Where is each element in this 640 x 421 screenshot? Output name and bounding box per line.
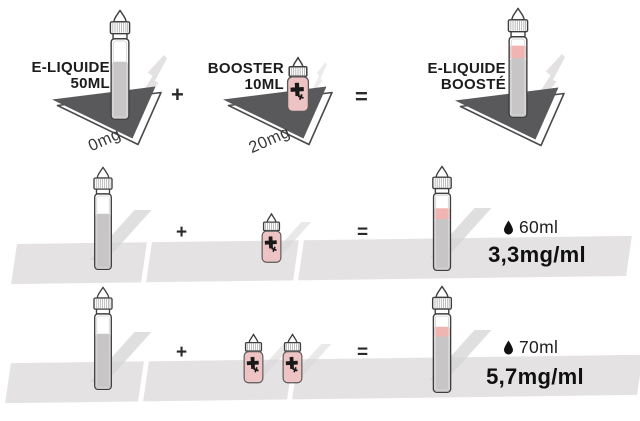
band-divider bbox=[293, 238, 304, 282]
bottle-cap bbox=[94, 298, 112, 309]
booster-bottle bbox=[283, 56, 313, 114]
eliquide-bottle-base bbox=[85, 286, 121, 392]
row2-concentration: 3,3mg/ml bbox=[452, 242, 622, 268]
plus-operator: + bbox=[176, 343, 187, 362]
eliquid-fill bbox=[510, 58, 526, 117]
booster-label-line1: BOOSTER bbox=[188, 61, 284, 77]
booster-layer-fill bbox=[510, 46, 526, 59]
droplet-icon bbox=[503, 340, 514, 355]
bottle-cap bbox=[508, 20, 527, 32]
equals-operator: = bbox=[357, 223, 368, 242]
eliquide-bottle-base bbox=[85, 166, 121, 272]
booster-pair bbox=[240, 331, 308, 387]
result-label-line1: E-LIQUIDE bbox=[410, 61, 506, 77]
plus-operator: + bbox=[176, 223, 187, 242]
eliquid-fill bbox=[435, 219, 450, 270]
bottle-collar bbox=[96, 189, 109, 194]
booster-bottle bbox=[279, 331, 306, 387]
bottle-tip bbox=[288, 334, 297, 342]
bottle-collar bbox=[96, 309, 109, 314]
cap-ridges bbox=[291, 68, 304, 76]
eliquid-mixing-infographic: E-LIQUIDE 50ML 0mg + BOOSTER 10ML 20mg =… bbox=[0, 0, 640, 421]
base-label-line1: E-LIQUIDE bbox=[14, 60, 110, 76]
booster-bottle bbox=[240, 331, 267, 387]
row2-volume-value: 60ml bbox=[519, 217, 558, 238]
bottle-tip bbox=[267, 214, 276, 222]
booster-label-line2: 10ML bbox=[188, 77, 284, 93]
eliquid-fill bbox=[96, 334, 111, 389]
base-label: E-LIQUIDE 50ML bbox=[14, 60, 110, 91]
bottle-cap bbox=[94, 178, 112, 189]
equals-operator: = bbox=[355, 86, 368, 108]
equals-operator: = bbox=[357, 343, 368, 362]
cap-ridges bbox=[287, 344, 299, 351]
droplet-icon bbox=[503, 220, 514, 235]
row2-volume: 60ml bbox=[503, 217, 558, 238]
bottle-tip bbox=[293, 58, 303, 67]
eliquid-fill bbox=[434, 337, 449, 392]
row3-volume: 70ml bbox=[503, 337, 558, 358]
booster-label: BOOSTER 10ML bbox=[188, 61, 284, 92]
booster-bottle bbox=[258, 211, 285, 266]
band-divider bbox=[141, 240, 152, 284]
bottle-collar bbox=[113, 34, 127, 39]
cap-ridges bbox=[248, 344, 260, 351]
result-label: E-LIQUIDE BOOSTÉ bbox=[410, 61, 506, 92]
booster-layer-fill bbox=[435, 208, 450, 220]
bottle-collar bbox=[435, 189, 448, 194]
bottle-cap bbox=[433, 177, 451, 188]
bottle-tip bbox=[512, 8, 524, 19]
row3-concentration: 5,7mg/ml bbox=[450, 364, 620, 390]
bottle-tip bbox=[436, 286, 448, 297]
bottle-cap bbox=[110, 22, 129, 34]
row3-volume-value: 70ml bbox=[519, 337, 558, 358]
bottle-collar bbox=[435, 309, 449, 314]
plus-operator: + bbox=[171, 84, 184, 106]
base-label-line2: 50ML bbox=[14, 76, 110, 92]
bottle-tip bbox=[436, 166, 448, 177]
band-divider bbox=[138, 359, 149, 403]
result-label-line2: BOOSTÉ bbox=[410, 77, 506, 93]
eliquid-fill bbox=[96, 214, 111, 269]
bottle-tip bbox=[97, 167, 108, 178]
bottle-tip bbox=[114, 10, 126, 21]
eliquid-fill bbox=[112, 62, 128, 119]
booster-layer-fill bbox=[434, 327, 449, 338]
cap-ridges bbox=[266, 223, 278, 230]
bottle-cap bbox=[433, 297, 452, 309]
bottle-collar bbox=[511, 32, 525, 37]
bottle-tip bbox=[97, 287, 108, 298]
bottle-tip bbox=[249, 334, 258, 342]
